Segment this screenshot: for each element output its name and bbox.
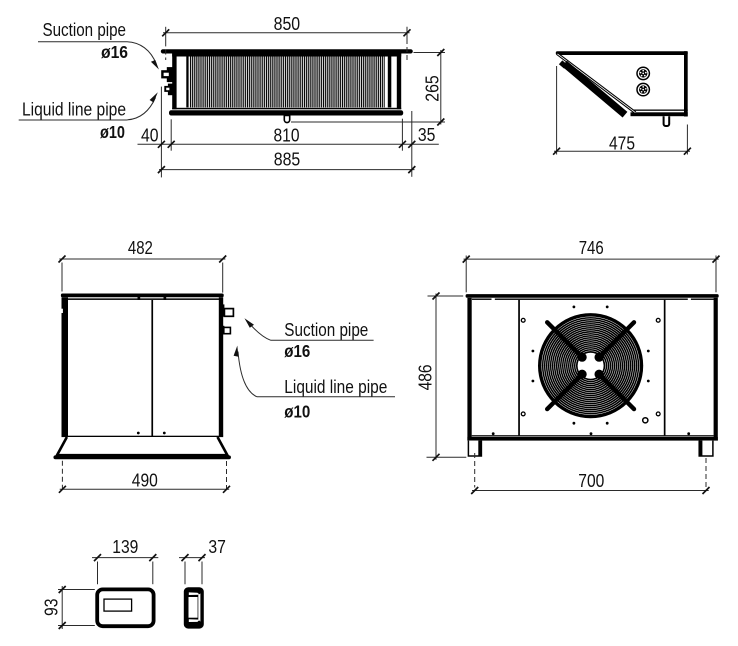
svg-text:885: 885 xyxy=(274,148,301,169)
svg-text:482: 482 xyxy=(128,237,153,258)
svg-text:ø16: ø16 xyxy=(284,341,310,361)
svg-text:40: 40 xyxy=(141,124,159,145)
svg-text:ø16: ø16 xyxy=(101,42,128,62)
svg-text:ø10: ø10 xyxy=(284,401,310,421)
svg-text:490: 490 xyxy=(132,469,158,490)
svg-text:ø10: ø10 xyxy=(100,122,125,142)
svg-text:746: 746 xyxy=(579,237,604,258)
svg-text:486: 486 xyxy=(415,364,436,390)
svg-text:700: 700 xyxy=(578,470,604,491)
svg-text:850: 850 xyxy=(274,13,301,34)
svg-text:Suction pipe: Suction pipe xyxy=(284,320,368,340)
svg-text:35: 35 xyxy=(418,124,436,145)
svg-text:Liquid line pipe: Liquid line pipe xyxy=(22,99,126,119)
svg-text:93: 93 xyxy=(41,599,62,617)
svg-text:265: 265 xyxy=(422,75,443,102)
svg-text:37: 37 xyxy=(208,536,226,557)
svg-text:475: 475 xyxy=(609,132,635,153)
svg-text:139: 139 xyxy=(112,536,138,557)
svg-text:Liquid line pipe: Liquid line pipe xyxy=(284,377,387,397)
svg-text:Suction pipe: Suction pipe xyxy=(43,20,127,40)
svg-text:810: 810 xyxy=(274,124,300,145)
